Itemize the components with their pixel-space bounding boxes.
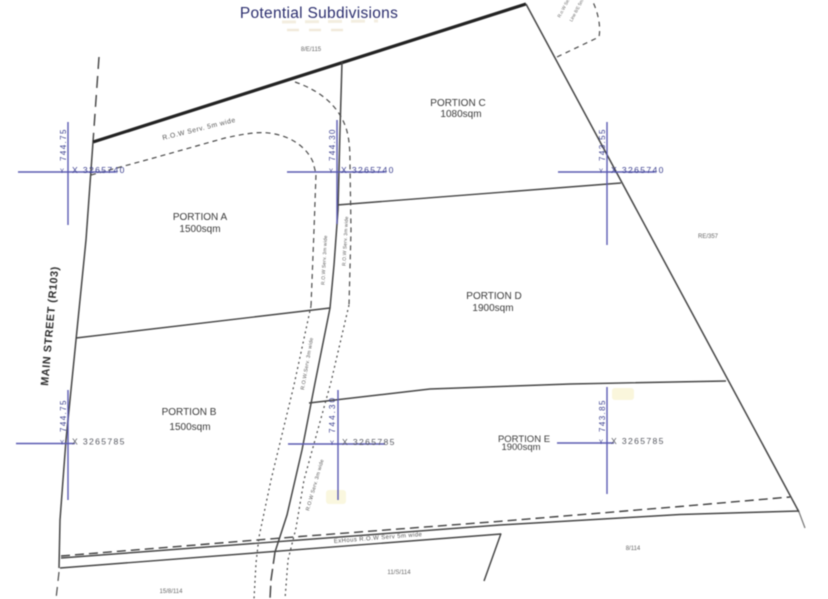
svg-text:PORTION D: PORTION D bbox=[466, 291, 521, 302]
svg-text:11/S/114: 11/S/114 bbox=[387, 570, 411, 576]
svg-text:PORTION A: PORTION A bbox=[173, 212, 228, 223]
svg-text:Y: Y bbox=[329, 169, 333, 175]
svg-text:1500sqm: 1500sqm bbox=[169, 422, 210, 433]
svg-text:X 3265740: X 3265740 bbox=[72, 165, 126, 175]
svg-text:Y: Y bbox=[599, 440, 603, 446]
svg-text:RE/357: RE/357 bbox=[698, 234, 719, 240]
svg-text:Y: Y bbox=[599, 169, 603, 175]
svg-text:744.30: 744.30 bbox=[328, 396, 337, 433]
svg-text:Y: Y bbox=[330, 441, 334, 447]
svg-text:1080sqm: 1080sqm bbox=[440, 109, 481, 120]
svg-text:744.30: 744.30 bbox=[328, 128, 337, 161]
svg-text:Y: Y bbox=[60, 169, 64, 175]
svg-text:PORTION C: PORTION C bbox=[430, 98, 485, 109]
svg-text:X 3265740: X 3265740 bbox=[611, 165, 665, 175]
svg-text:X 3265785: X 3265785 bbox=[342, 437, 396, 447]
svg-text:1900sqm: 1900sqm bbox=[501, 442, 540, 453]
svg-text:PORTION B: PORTION B bbox=[162, 407, 217, 418]
svg-text:744.75: 744.75 bbox=[59, 399, 68, 432]
svg-text:743.55: 743.55 bbox=[598, 128, 607, 161]
svg-text:8/114: 8/114 bbox=[626, 546, 641, 552]
svg-text:1900sqm: 1900sqm bbox=[472, 303, 513, 314]
svg-text:Potential Subdivisions: Potential Subdivisions bbox=[240, 5, 398, 22]
svg-text:744.75: 744.75 bbox=[59, 128, 68, 161]
svg-text:X 3265785: X 3265785 bbox=[72, 437, 126, 447]
svg-text:15/8/114: 15/8/114 bbox=[160, 589, 184, 595]
svg-text:8/E/115: 8/E/115 bbox=[301, 47, 322, 53]
svg-text:X 3265785: X 3265785 bbox=[611, 436, 665, 446]
svg-text:1500sqm: 1500sqm bbox=[179, 224, 220, 235]
svg-text:Y: Y bbox=[60, 441, 64, 447]
svg-text:743.85: 743.85 bbox=[598, 399, 607, 432]
svg-text:X 3265740: X 3265740 bbox=[341, 165, 395, 175]
